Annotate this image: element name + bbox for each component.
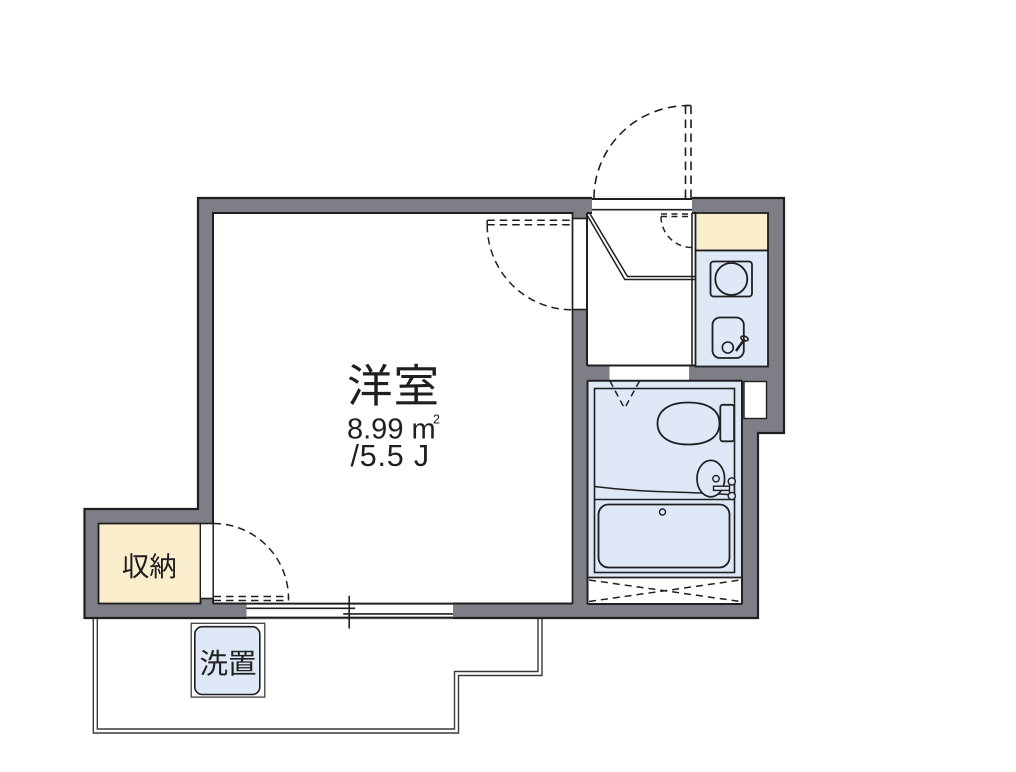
svg-text:/5.5 J: /5.5 J xyxy=(351,439,430,473)
svg-text:2: 2 xyxy=(433,413,440,427)
